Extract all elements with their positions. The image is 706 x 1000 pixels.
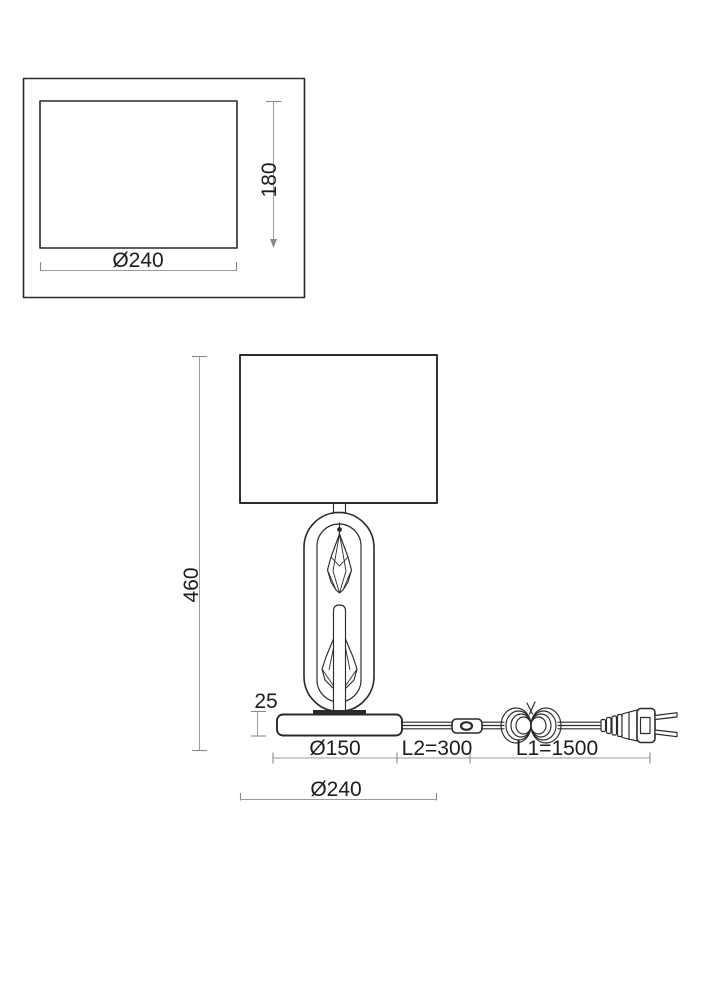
lamp-shade xyxy=(240,355,437,503)
side-view: 460 25 xyxy=(180,355,677,801)
coil-loop xyxy=(531,717,546,734)
cord-segment-coil-to-plug xyxy=(558,722,601,729)
cord-length-dimension-label: L1=1500 xyxy=(516,737,598,760)
plug-face xyxy=(637,709,655,743)
plug-strain-relief-rib xyxy=(612,716,617,735)
coil-loop xyxy=(516,717,531,734)
dimension-arrow xyxy=(270,239,277,248)
shade-stem xyxy=(334,503,346,513)
coil-loop xyxy=(506,711,531,740)
technical-drawing-canvas: 180 Ø240 460 xyxy=(0,0,706,1000)
dimension-depth-180: 180 xyxy=(258,101,282,248)
plug-strain-relief-rib xyxy=(607,718,612,734)
dimension-base-height-25: 25 xyxy=(251,690,278,736)
shade-top-view-outline xyxy=(40,101,237,248)
center-rod xyxy=(334,605,346,711)
topview-width-dimension-label: Ø240 xyxy=(112,249,163,272)
crystal-hanger-bead xyxy=(337,527,342,532)
height-dimension-label: 460 xyxy=(180,567,203,602)
dimension-row-base-cord: Ø150 L2=300 L1=1500 xyxy=(273,737,650,764)
dimension-shade-width-240: Ø240 xyxy=(240,778,437,801)
top-view: 180 Ø240 xyxy=(24,79,305,298)
inline-switch xyxy=(452,719,482,733)
switch-cord-dimension-label: L2=300 xyxy=(402,737,473,760)
plug-prong-bottom xyxy=(655,730,677,737)
shade-width-dimension-label: Ø240 xyxy=(310,778,361,801)
base-height-dimension-label: 25 xyxy=(254,690,277,713)
crystal-outline xyxy=(328,534,352,593)
dimension-height-460: 460 xyxy=(180,356,207,751)
plug-strain-relief-rib xyxy=(601,720,606,732)
plug-strain-relief-rib xyxy=(618,715,623,737)
dimension-topview-width-240: Ø240 xyxy=(40,249,237,272)
crystal-drop-upper xyxy=(328,523,352,593)
lamp-base xyxy=(277,715,402,736)
coil-knot-tail xyxy=(527,702,535,714)
base-width-dimension-label: Ø150 xyxy=(309,737,360,760)
lamp-technical-drawing-page: 180 Ø240 460 xyxy=(0,0,706,1000)
base-plate xyxy=(313,710,366,714)
depth-dimension-label: 180 xyxy=(258,162,281,197)
cord-segment-base-to-switch xyxy=(402,722,452,729)
power-plug xyxy=(601,709,677,743)
coil-loop xyxy=(531,711,556,740)
plug-prong-top xyxy=(655,713,677,720)
